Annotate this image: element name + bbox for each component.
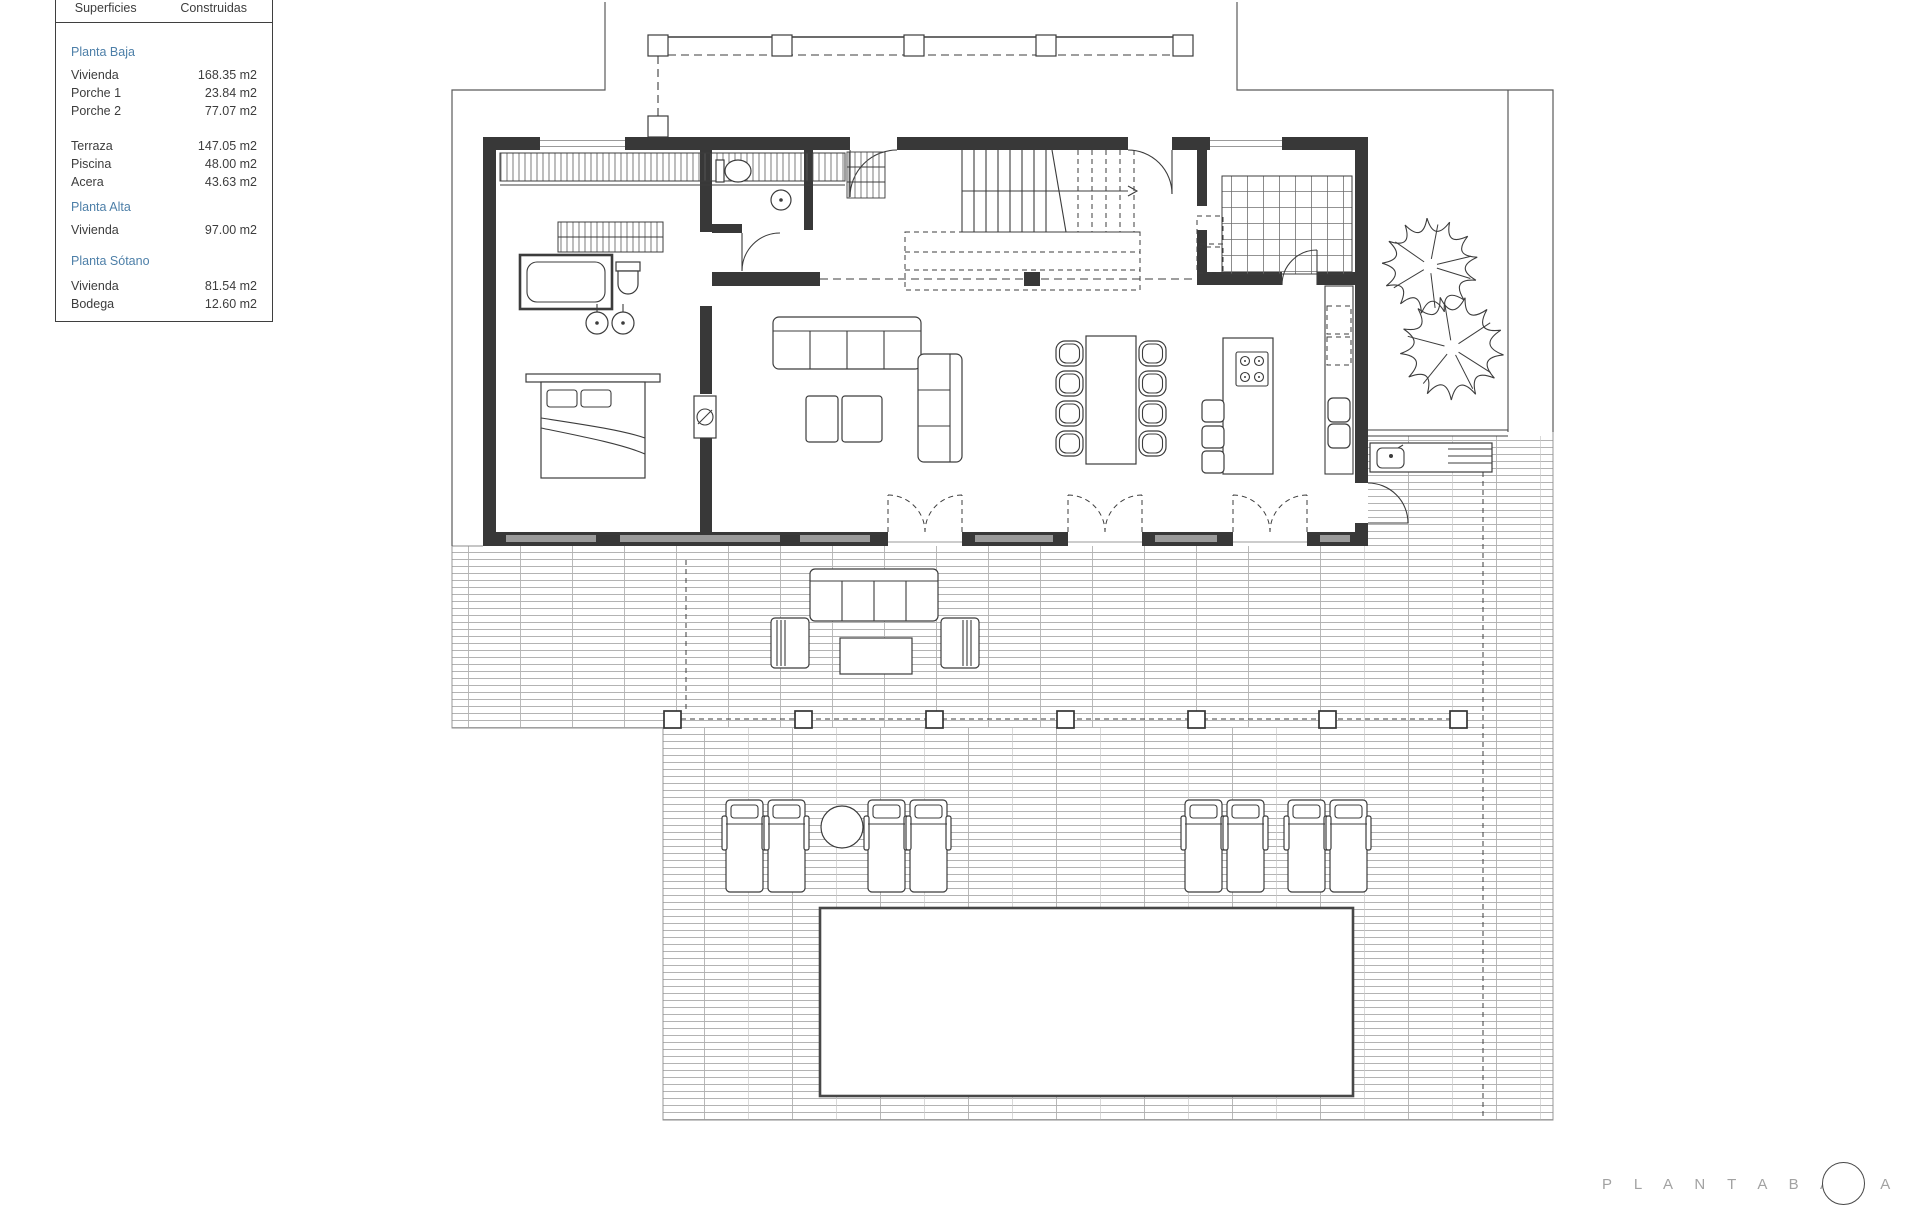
ottoman	[842, 396, 882, 442]
legend-header: Superficies Construidas	[56, 0, 272, 23]
legend-row: Vivienda 97.00 m2	[71, 221, 257, 239]
legend-section-planta-sotano: Planta Sótano	[71, 252, 257, 270]
legend-row: Acera 43.63 m2	[71, 173, 257, 191]
floor-plan-drawing	[0, 0, 1920, 1200]
legend-row: Porche 1 23.84 m2	[71, 84, 257, 102]
tree-symbol	[1382, 218, 1477, 313]
legend-col1-header: Superficies	[56, 1, 155, 15]
drawing-sheet: Superficies Construidas Planta Baja Vivi…	[0, 0, 1920, 1200]
tree-symbol	[1400, 297, 1503, 400]
pool-side-table	[821, 806, 863, 848]
stool	[1202, 426, 1224, 448]
legend-row: Piscina 48.00 m2	[71, 155, 257, 173]
legend-row: Bodega 12.60 m2	[71, 295, 257, 313]
legend-row: Porche 2 77.07 m2	[71, 102, 257, 120]
outdoor-armchair	[941, 618, 979, 668]
legend-row: Terraza 147.05 m2	[71, 137, 257, 155]
sofa-side	[918, 354, 962, 462]
closet	[558, 222, 663, 252]
stool	[1202, 451, 1224, 473]
coffee-table	[840, 638, 912, 674]
sofa-long	[773, 317, 921, 369]
legend-row: Vivienda 81.54 m2	[71, 277, 257, 295]
toilet	[616, 262, 640, 294]
outdoor-sofa	[810, 569, 938, 621]
outdoor-armchair	[771, 618, 809, 668]
stool	[1202, 400, 1224, 422]
bbq-courtyard	[1368, 218, 1508, 472]
tree-twigs	[1394, 225, 1491, 389]
legend-row: Vivienda 168.35 m2	[71, 66, 257, 84]
ottoman	[806, 396, 838, 442]
legend-col2-header: Construidas	[155, 1, 272, 15]
legend-table: Superficies Construidas Planta Baja Vivi…	[55, 0, 273, 322]
legend-body: Planta Baja Vivienda 168.35 m2 Porche 1 …	[56, 43, 272, 313]
column-symbol	[694, 396, 716, 438]
porch-roof	[648, 35, 1193, 137]
legend-section-planta-baja: Planta Baja	[71, 43, 257, 61]
bed	[526, 374, 660, 478]
wardrobe	[500, 153, 845, 185]
bathtub	[520, 255, 612, 309]
title-circle	[1822, 1162, 1865, 1205]
pool	[820, 908, 1353, 1096]
legend-section-planta-alta: Planta Alta	[71, 198, 257, 216]
